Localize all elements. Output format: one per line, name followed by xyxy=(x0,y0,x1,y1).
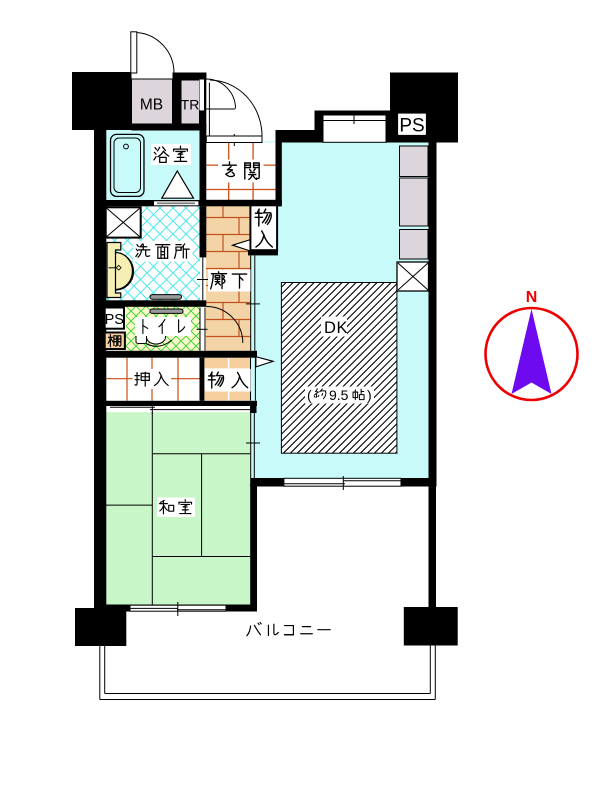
svg-text:TR: TR xyxy=(181,97,200,113)
svg-text:MB: MB xyxy=(140,97,163,114)
svg-text:DK: DK xyxy=(324,319,348,337)
svg-text:(: ( xyxy=(307,387,312,403)
svg-text:N: N xyxy=(526,289,538,306)
svg-text:9.5: 9.5 xyxy=(329,387,349,403)
svg-text:): ) xyxy=(367,387,372,403)
svg-text:PS: PS xyxy=(399,116,424,137)
svg-text:PS: PS xyxy=(105,312,124,328)
